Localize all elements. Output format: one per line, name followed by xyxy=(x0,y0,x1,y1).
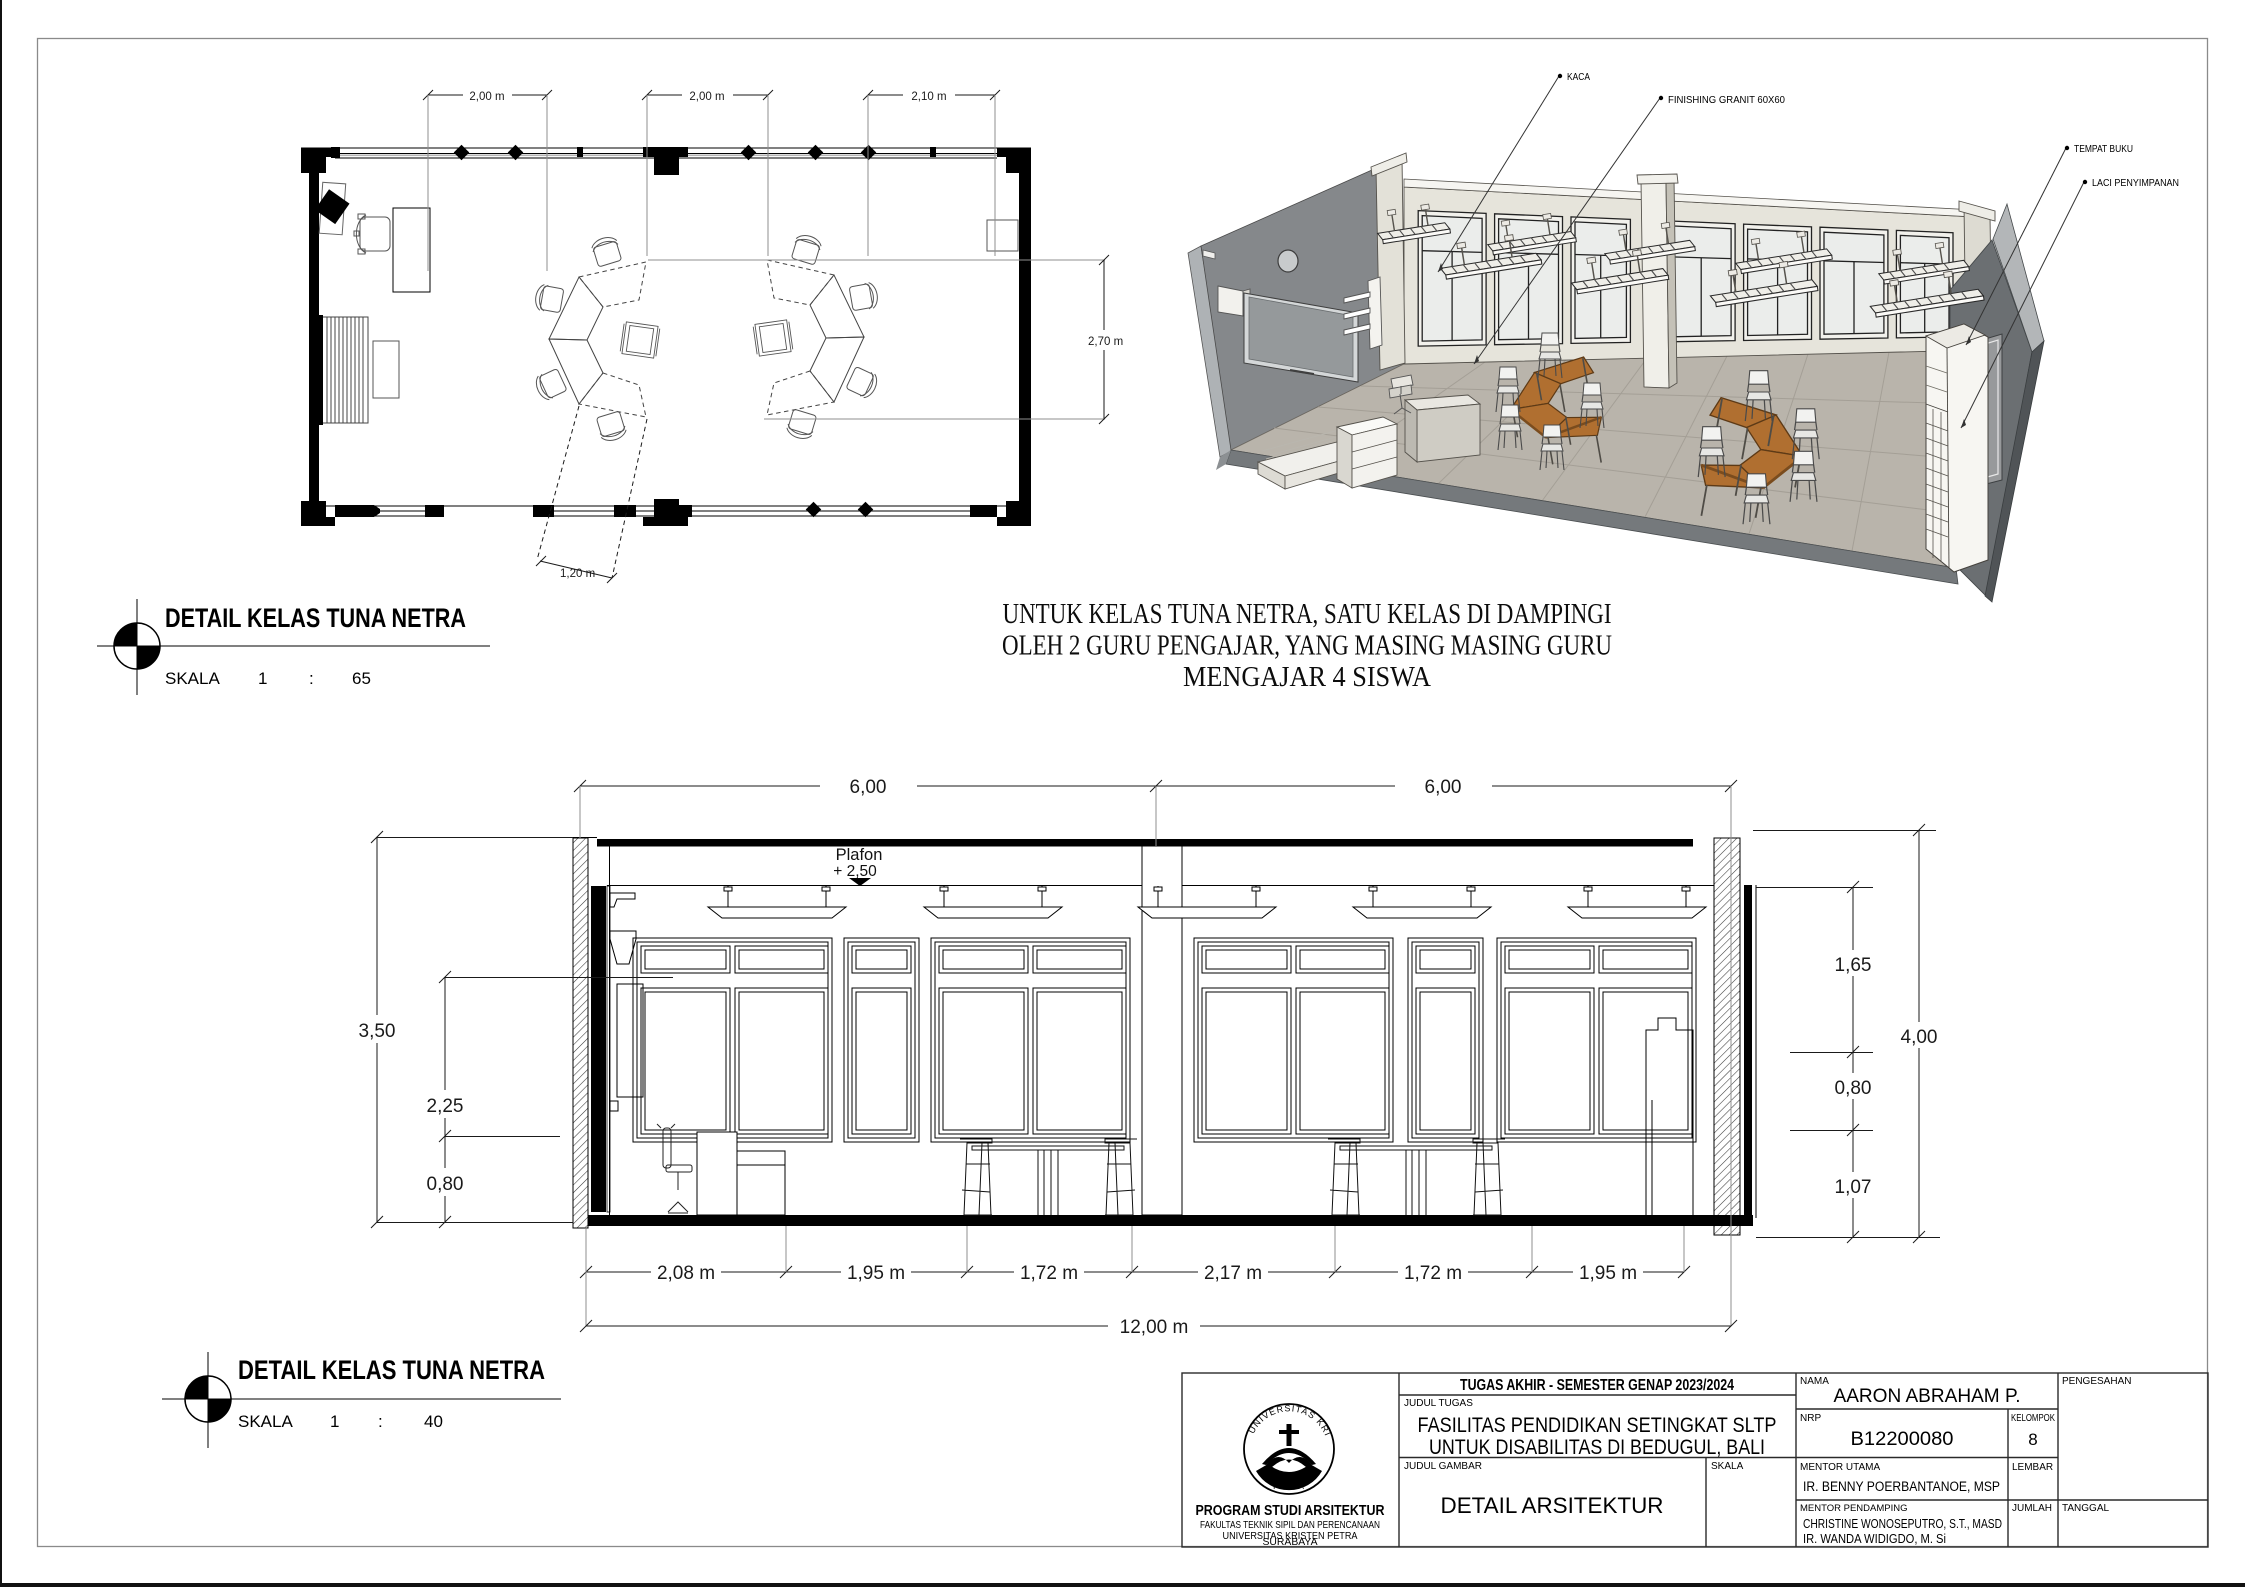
svg-text:IR. WANDA WIDIGDO, M. Si: IR. WANDA WIDIGDO, M. Si xyxy=(1803,1532,1946,1546)
svg-text:FASILITAS PENDIDIKAN SETINGKAT: FASILITAS PENDIDIKAN SETINGKAT SLTP xyxy=(1418,1414,1777,1437)
svg-text:KELOMPOK: KELOMPOK xyxy=(2011,1413,2055,1424)
svg-text:FINISHING GRANIT 60X60: FINISHING GRANIT 60X60 xyxy=(1668,95,1785,106)
svg-text:6,00: 6,00 xyxy=(850,777,887,798)
svg-text:DETAIL ARSITEKTUR: DETAIL ARSITEKTUR xyxy=(1441,1493,1664,1518)
svg-text:JUMLAH: JUMLAH xyxy=(2012,1503,2052,1514)
svg-text:UNTUK KELAS TUNA NETRA, SATU K: UNTUK KELAS TUNA NETRA, SATU KELAS DI DA… xyxy=(1003,599,1612,630)
svg-text:+ 2,50: + 2,50 xyxy=(833,863,877,880)
svg-text:IR. BENNY POERBANTANOE, MSP: IR. BENNY POERBANTANOE, MSP xyxy=(1803,1479,2000,1494)
svg-text:JUDUL GAMBAR: JUDUL GAMBAR xyxy=(1404,1461,1482,1472)
svg-text:Plafon: Plafon xyxy=(836,846,883,864)
svg-text:2,70 m: 2,70 m xyxy=(1088,336,1123,348)
svg-text:4,00: 4,00 xyxy=(1901,1027,1938,1048)
svg-text:1,07: 1,07 xyxy=(1835,1177,1872,1198)
svg-text:SKALA: SKALA xyxy=(165,669,220,688)
svg-text:1,72 m: 1,72 m xyxy=(1020,1263,1078,1284)
svg-text:SKALA: SKALA xyxy=(238,1412,293,1431)
svg-text:1,72 m: 1,72 m xyxy=(1404,1263,1462,1284)
svg-text:MENTOR UTAMA: MENTOR UTAMA xyxy=(1800,1462,1881,1473)
svg-text:LACI PENYIMPANAN: LACI PENYIMPANAN xyxy=(2092,178,2179,189)
svg-text:B12200080: B12200080 xyxy=(1851,1429,1954,1450)
svg-text:TEMPAT BUKU: TEMPAT BUKU xyxy=(2074,144,2133,155)
svg-text:PROGRAM STUDI ARSITEKTUR: PROGRAM STUDI ARSITEKTUR xyxy=(1196,1503,1385,1519)
svg-text:TUGAS AKHIR - SEMESTER GENAP 2: TUGAS AKHIR - SEMESTER GENAP 2023/2024 xyxy=(1460,1377,1734,1394)
svg-text:8: 8 xyxy=(2028,1430,2037,1449)
svg-text:MENTOR PENDAMPING: MENTOR PENDAMPING xyxy=(1800,1503,1908,1514)
svg-text:1: 1 xyxy=(330,1412,339,1431)
svg-text:FAKULTAS TEKNIK SIPIL DAN PERE: FAKULTAS TEKNIK SIPIL DAN PERENCANAAN xyxy=(1200,1520,1380,1531)
svg-text:40: 40 xyxy=(424,1412,443,1431)
svg-text:3,50: 3,50 xyxy=(359,1021,396,1042)
svg-text:SURABAYA: SURABAYA xyxy=(1263,1537,1318,1548)
svg-text:CHRISTINE WONOSEPUTRO, S.T., M: CHRISTINE WONOSEPUTRO, S.T., MASD xyxy=(1803,1517,2002,1531)
svg-text:2,00 m: 2,00 m xyxy=(469,91,504,103)
svg-text:DETAIL KELAS TUNA NETRA: DETAIL KELAS TUNA NETRA xyxy=(165,603,466,633)
svg-text:1,95 m: 1,95 m xyxy=(1579,1263,1637,1284)
svg-text:OLEH 2 GURU PENGAJAR, YANG MAS: OLEH 2 GURU PENGAJAR, YANG MASING MASING… xyxy=(1002,631,1612,662)
svg-text:2,17 m: 2,17 m xyxy=(1204,1263,1262,1284)
svg-text:0,80: 0,80 xyxy=(1835,1078,1872,1099)
svg-text:12,00 m: 12,00 m xyxy=(1120,1317,1189,1338)
svg-text:DETAIL KELAS TUNA NETRA: DETAIL KELAS TUNA NETRA xyxy=(238,1355,545,1385)
svg-text::: : xyxy=(309,669,314,688)
svg-text:LEMBAR: LEMBAR xyxy=(2012,1462,2053,1473)
svg-text:1,95 m: 1,95 m xyxy=(847,1263,905,1284)
svg-text::: : xyxy=(378,1412,383,1431)
svg-text:AARON ABRAHAM P.: AARON ABRAHAM P. xyxy=(1834,1386,2021,1407)
svg-text:0,80: 0,80 xyxy=(427,1174,464,1195)
svg-text:NAMA: NAMA xyxy=(1800,1376,1829,1387)
svg-text:SKALA: SKALA xyxy=(1711,1461,1744,1472)
svg-text:1,65: 1,65 xyxy=(1835,955,1872,976)
svg-text:KACA: KACA xyxy=(1567,72,1590,83)
svg-text:1,20 m: 1,20 m xyxy=(560,568,595,580)
svg-text:PENGESAHAN: PENGESAHAN xyxy=(2062,1376,2131,1387)
svg-text:1: 1 xyxy=(258,669,267,688)
svg-text:TANGGAL: TANGGAL xyxy=(2062,1503,2109,1514)
svg-text:NRP: NRP xyxy=(1800,1413,1821,1424)
svg-text:JUDUL TUGAS: JUDUL TUGAS xyxy=(1404,1398,1473,1409)
svg-text:6,00: 6,00 xyxy=(1425,777,1462,798)
svg-text:MENGAJAR 4 SISWA: MENGAJAR 4 SISWA xyxy=(1183,662,1431,693)
svg-text:2,25: 2,25 xyxy=(427,1096,464,1117)
svg-text:2,00 m: 2,00 m xyxy=(689,91,724,103)
svg-text:65: 65 xyxy=(352,669,371,688)
svg-text:UNTUK DISABILITAS DI BEDUGUL,: UNTUK DISABILITAS DI BEDUGUL, BALI xyxy=(1429,1436,1765,1459)
svg-text:PETRA: PETRA xyxy=(1273,1482,1305,1491)
svg-text:2,10 m: 2,10 m xyxy=(911,91,946,103)
svg-text:2,08 m: 2,08 m xyxy=(657,1263,715,1284)
